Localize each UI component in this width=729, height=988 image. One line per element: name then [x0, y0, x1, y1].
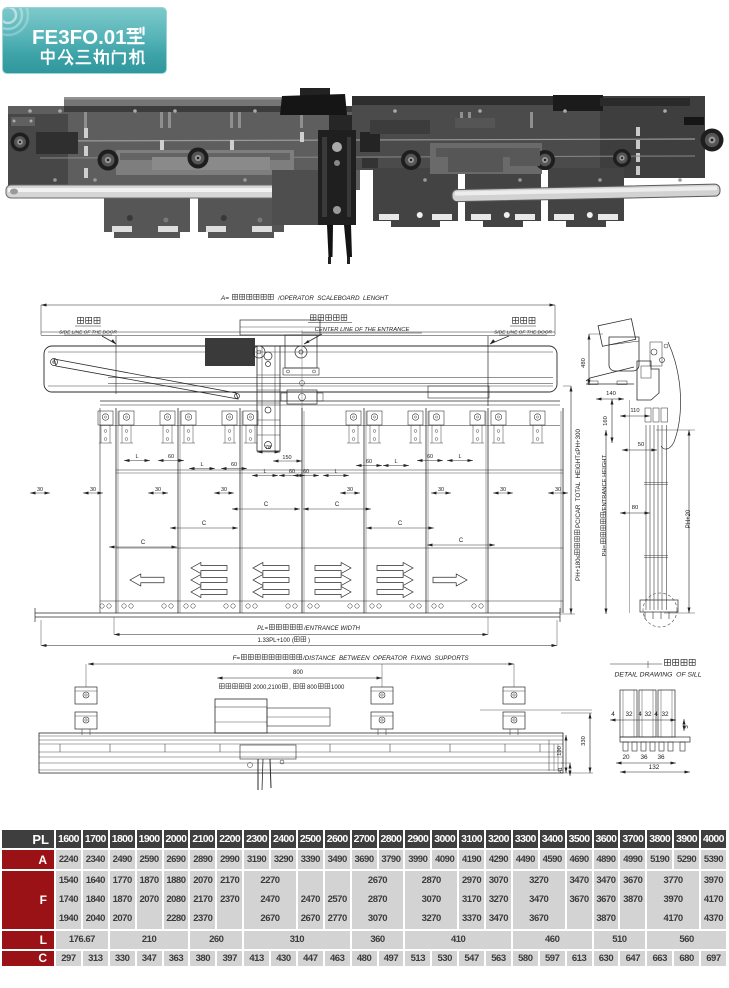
svg-text:DETAIL DRAWING OF SILL: DETAIL DRAWING OF SILL — [615, 672, 702, 679]
svg-text:1000: 1000 — [331, 685, 345, 691]
svg-text:160: 160 — [603, 416, 609, 426]
svg-text:SIDE LINE OF THE DOOR: SIDE LINE OF THE DOOR — [494, 330, 552, 336]
svg-text:480: 480 — [581, 358, 587, 368]
svg-text:/DISTANCE BETWEEN OPERATOR: /DISTANCE BETWEEN OPERATOR FIXING SUPPOR… — [302, 655, 469, 662]
svg-text:PH+180≤: PH+180≤ — [575, 554, 582, 581]
svg-text:/ENTRANCE WIDTH: /ENTRANCE WIDTH — [303, 626, 361, 632]
svg-text:1.33PL+100: 1.33PL+100 — [257, 638, 290, 644]
svg-text:30: 30 — [37, 487, 43, 493]
svg-text:80: 80 — [632, 505, 638, 511]
svg-text:PH=: PH= — [602, 544, 608, 556]
svg-text:/OPERATOR SCALEBOARD LENGHT: /OPERATOR SCALEBOARD LENGHT — [277, 295, 389, 302]
svg-text:60: 60 — [366, 459, 372, 465]
svg-text:PH+20: PH+20 — [686, 509, 692, 528]
svg-text:32: 32 — [625, 711, 633, 718]
svg-text:60: 60 — [168, 454, 174, 460]
svg-text:2000,2100: 2000,2100 — [253, 685, 282, 691]
svg-text:SIDE LINE OF THE DOOR: SIDE LINE OF THE DOOR — [59, 330, 117, 336]
svg-text:32: 32 — [644, 711, 652, 718]
svg-text:,: , — [289, 685, 291, 691]
svg-text:C: C — [141, 540, 146, 546]
svg-text:150: 150 — [282, 455, 291, 461]
svg-text:FE3FO.01: FE3FO.01 — [32, 26, 127, 49]
svg-text:41: 41 — [558, 767, 564, 773]
svg-text:30: 30 — [438, 487, 444, 493]
svg-text:132: 132 — [649, 764, 660, 771]
svg-text:30: 30 — [90, 487, 96, 493]
svg-text:60: 60 — [231, 462, 237, 468]
svg-text:800: 800 — [293, 670, 304, 676]
svg-text:PL=: PL= — [257, 626, 268, 632]
svg-text:C: C — [398, 521, 403, 527]
svg-text:F=: F= — [233, 655, 241, 662]
svg-text:30: 30 — [347, 487, 353, 493]
svg-text:800: 800 — [307, 685, 318, 691]
svg-text:330: 330 — [581, 736, 587, 746]
svg-text:C: C — [264, 502, 269, 508]
svg-text:30: 30 — [221, 487, 227, 493]
svg-text:30: 30 — [555, 487, 561, 493]
svg-text:C: C — [335, 502, 340, 508]
svg-text:30: 30 — [500, 487, 506, 493]
svg-text:): ) — [308, 638, 310, 644]
svg-text:(: ( — [292, 638, 294, 644]
svg-text:C: C — [202, 521, 207, 527]
svg-text:C: C — [459, 538, 464, 544]
svg-text:36: 36 — [640, 754, 648, 761]
svg-text:78: 78 — [265, 445, 271, 451]
svg-text:50: 50 — [638, 442, 644, 448]
svg-text:L: L — [394, 459, 397, 465]
svg-text:L: L — [200, 462, 203, 468]
svg-text:4: 4 — [611, 711, 615, 718]
svg-text:36: 36 — [657, 754, 665, 761]
svg-text:A=: A= — [220, 295, 229, 302]
svg-text:140: 140 — [606, 391, 616, 397]
svg-text:L: L — [135, 454, 138, 460]
svg-text:4: 4 — [638, 711, 642, 718]
svg-text:PC/CAR TOTAL HEIGHT≤PH+300: PC/CAR TOTAL HEIGHT≤PH+300 — [575, 429, 582, 528]
svg-text:4: 4 — [654, 711, 658, 718]
svg-text:/ENTRANCE HEIGHT: /ENTRANCE HEIGHT — [602, 455, 608, 512]
svg-text:20: 20 — [622, 754, 630, 761]
svg-text:30: 30 — [155, 487, 161, 493]
svg-text:32: 32 — [661, 711, 669, 718]
svg-text:110: 110 — [630, 408, 639, 414]
svg-text:L: L — [458, 454, 461, 460]
